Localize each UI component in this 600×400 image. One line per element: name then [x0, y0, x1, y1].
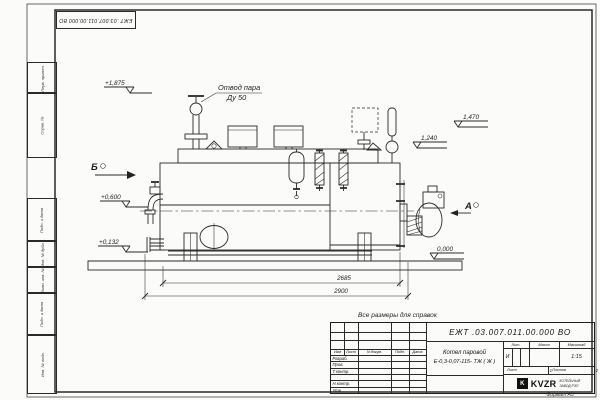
side-box-vzam-inv: Взам. инв. №	[27, 266, 57, 294]
lit-label: Лит.	[503, 341, 529, 348]
row-ncontrol: Н.контр.	[331, 380, 360, 387]
steam-outlet-valve: Отвод пара Ду 50	[185, 83, 262, 149]
lit-value: И	[503, 348, 512, 366]
sheet-label: Лист	[507, 368, 517, 372]
burner-assembly	[400, 186, 444, 237]
title-block: Изм Лист N докум. Подп. Дата Разраб. Про…	[330, 322, 595, 394]
side-box-sprav-no: Справ. №	[27, 92, 57, 158]
gauge-siphon	[386, 108, 398, 163]
col-date: Дата	[409, 349, 426, 355]
manhole	[200, 223, 228, 251]
ground-line	[88, 261, 462, 270]
product-name-line1: Котел паровой	[443, 349, 486, 358]
col-sign: Подп.	[391, 349, 409, 355]
scale-value: 1:15	[559, 348, 594, 366]
sheets-label: Листов	[552, 368, 566, 372]
blueprint-sheet: Отвод пара Ду 50	[0, 0, 600, 400]
boiler-body	[140, 163, 414, 250]
elevation-0132: +0,132	[99, 239, 119, 246]
company-logo-icon: K	[517, 378, 528, 389]
company-cell: K KVZR КОТЕЛЬНЫЙ ЗАВОД РЭП	[503, 374, 594, 393]
elevation-0600: +0,600	[101, 194, 121, 201]
product-name-line2: Е-0,3-0,07-115- ТЖ ( Ж )	[434, 358, 495, 366]
col-doc: N докум.	[358, 349, 391, 355]
dimension-2685: 2685	[336, 275, 351, 282]
elevation-1470: 1,470	[463, 114, 479, 121]
side-box-podp-data-1: Подп. и дата	[27, 198, 57, 242]
scale-label: Масштаб	[559, 341, 594, 348]
top-stamp: ЕЖТ .03.007.011.00.000 ВО	[56, 11, 136, 29]
side-box-inv-podl: Инв. № подл.	[27, 334, 57, 394]
top-stamp-number: ЕЖТ .03.007.011.00.000 ВО	[59, 17, 132, 23]
view-a-label: А	[464, 201, 472, 212]
row-approved: Утв.	[331, 387, 360, 393]
mass-label: Масса	[529, 341, 559, 348]
sheets-value: 2	[596, 368, 598, 373]
side-box-perv-primen: Перв. примен.	[27, 62, 57, 94]
level-column	[289, 149, 304, 199]
reference-note: Все размеры для справок	[358, 311, 438, 319]
elevation-0000: 0,000	[437, 246, 453, 253]
sight-glasses	[315, 149, 348, 191]
steam-outlet-dn-label: Ду 50	[226, 93, 247, 102]
elevation-marks: +1,875 1,470 1,240 +0,600 +0,132 0,000	[98, 80, 488, 259]
row-tcontrol: Т.контр.	[331, 368, 360, 374]
elevation-1240: 1,240	[421, 135, 437, 142]
side-box-inv-dubl: Инв. № дубл.	[27, 240, 57, 268]
side-box-podp-data-2: Подп. и дата	[27, 292, 57, 336]
view-b-label: Б	[91, 162, 98, 173]
format-note: Формат А3	[520, 392, 600, 398]
doc-number: ЕЖТ .03.007.011.00.000 ВО	[426, 323, 594, 341]
boiler-base	[147, 233, 372, 261]
company-name: КОТЕЛЬНЫЙ ЗАВОД РЭП	[559, 379, 580, 388]
company-logo-text: KVZR	[531, 379, 557, 389]
row-checked: Пров.	[331, 361, 360, 368]
product-name: Котел паровой Е-0,3-0,07-115- ТЖ ( Ж )	[426, 341, 503, 375]
dimension-2900: 2900	[333, 288, 348, 295]
top-hatches	[228, 126, 303, 149]
safety-valve	[352, 108, 381, 150]
steam-outlet-label: Отвод пара	[218, 83, 260, 92]
sheets-cell: Листов 2	[548, 366, 600, 374]
elevation-1875: +1,875	[105, 80, 125, 87]
